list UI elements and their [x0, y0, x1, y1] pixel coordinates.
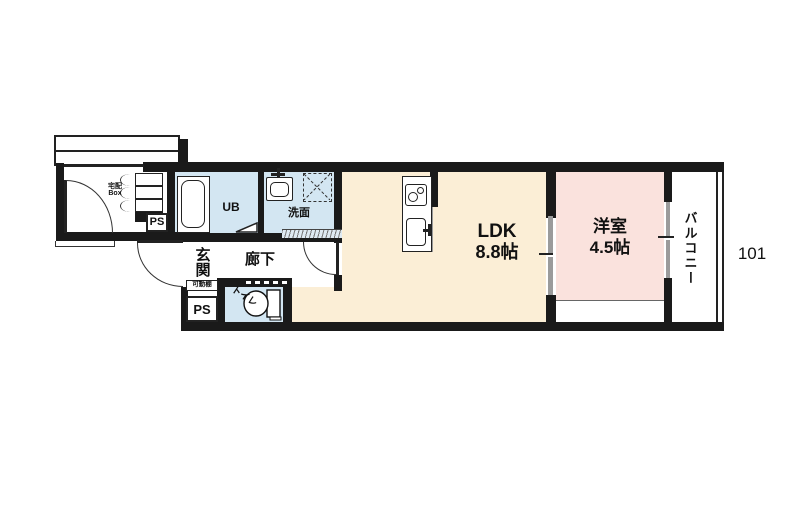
bedroom-window-panel-2 — [666, 240, 670, 278]
washroom-faucet-stem — [277, 168, 280, 178]
unit-west-wall — [167, 162, 175, 241]
bedroom-size-label: 4.5帖 — [575, 238, 645, 257]
balcony-railing-outer — [722, 172, 724, 322]
toilet-door-track — [246, 281, 288, 284]
balcony-railing-inner — [716, 172, 718, 322]
partition-sliding-door-panel-2 — [548, 257, 553, 295]
exterior-stairs-step-line — [56, 150, 178, 152]
pipe-space-left-label: PS — [150, 217, 165, 228]
bedroom-east-wall-north — [664, 172, 672, 202]
washing-machine-pan-cross — [304, 174, 330, 200]
corridor-door-leaf — [336, 242, 339, 275]
pipe-space-entrance-label: PS — [193, 303, 210, 316]
unit-bath-label: UB — [216, 199, 246, 214]
porch-step — [55, 241, 115, 247]
bedroom-label: 洋室 — [575, 217, 645, 236]
washroom-sliding-door — [282, 229, 342, 238]
bathtub — [177, 176, 210, 233]
partition-wall-north — [546, 162, 556, 218]
delivery-box-2 — [135, 186, 163, 199]
delivery-box-3 — [135, 199, 163, 212]
washroom-label: 洗面 — [283, 206, 315, 220]
toilet-east-wall — [283, 287, 292, 322]
bottom-wall — [181, 322, 724, 331]
left-block-west-wall — [56, 163, 64, 241]
kitchen-burner-small — [417, 187, 424, 194]
partition-sliding-door-tick — [539, 253, 553, 255]
corridor-door-swing — [303, 242, 336, 275]
bedroom-window-panel-1 — [666, 202, 670, 236]
unit-bath-door-icon — [233, 220, 259, 236]
entrance-door-swing — [137, 243, 183, 287]
bedroom-lower-band — [556, 300, 664, 322]
kitchen-faucet-icon — [423, 229, 431, 232]
delivery-box-label: 宅配 Box — [100, 181, 130, 199]
toilet-west-wall — [217, 278, 225, 331]
pipe-space-left: PS — [146, 213, 168, 232]
partition-sliding-door-panel-1 — [548, 216, 553, 254]
washroom-sink — [266, 177, 293, 201]
floor-plan: PS 可動棚 PS 宅配 Box UB 洗面 玄関 廊下 トイレ LDK 8.8… — [0, 0, 800, 511]
movable-shelf-label: 可動棚 — [192, 282, 212, 289]
delivery-box-swing-3 — [120, 200, 130, 212]
bedroom-window-tick — [658, 236, 674, 238]
unit-number: 101 — [733, 243, 771, 263]
corridor-door-south-wall — [334, 275, 342, 291]
pipe-space-entrance: PS — [186, 296, 218, 322]
bedroom-room — [556, 172, 664, 300]
stairs-wall-bar — [178, 139, 188, 163]
delivery-box-1 — [135, 173, 163, 186]
top-wall — [143, 162, 724, 172]
ldk-label: LDK — [460, 221, 534, 241]
corridor-label: 廊下 — [234, 250, 286, 268]
entrance-label: 玄関 — [193, 241, 211, 283]
kitchen-sink — [406, 218, 426, 246]
delivery-box-label-line1: 宅配 — [108, 183, 122, 190]
washroom-sink-basin — [270, 182, 289, 197]
left-block-top-line — [64, 165, 144, 167]
balcony-label: バルコニー — [681, 196, 699, 300]
bathtub-inner — [181, 180, 205, 228]
hall-north-wall — [167, 233, 282, 242]
washing-machine-pan — [303, 173, 332, 202]
ldk-room-extension — [292, 287, 342, 322]
ldk-size-label: 8.8帖 — [458, 242, 536, 262]
bedroom-east-wall-south — [664, 278, 672, 331]
partition-wall-south — [546, 295, 556, 331]
delivery-box-label-line2: Box — [108, 190, 121, 197]
kitchen-burner-large — [408, 192, 418, 202]
